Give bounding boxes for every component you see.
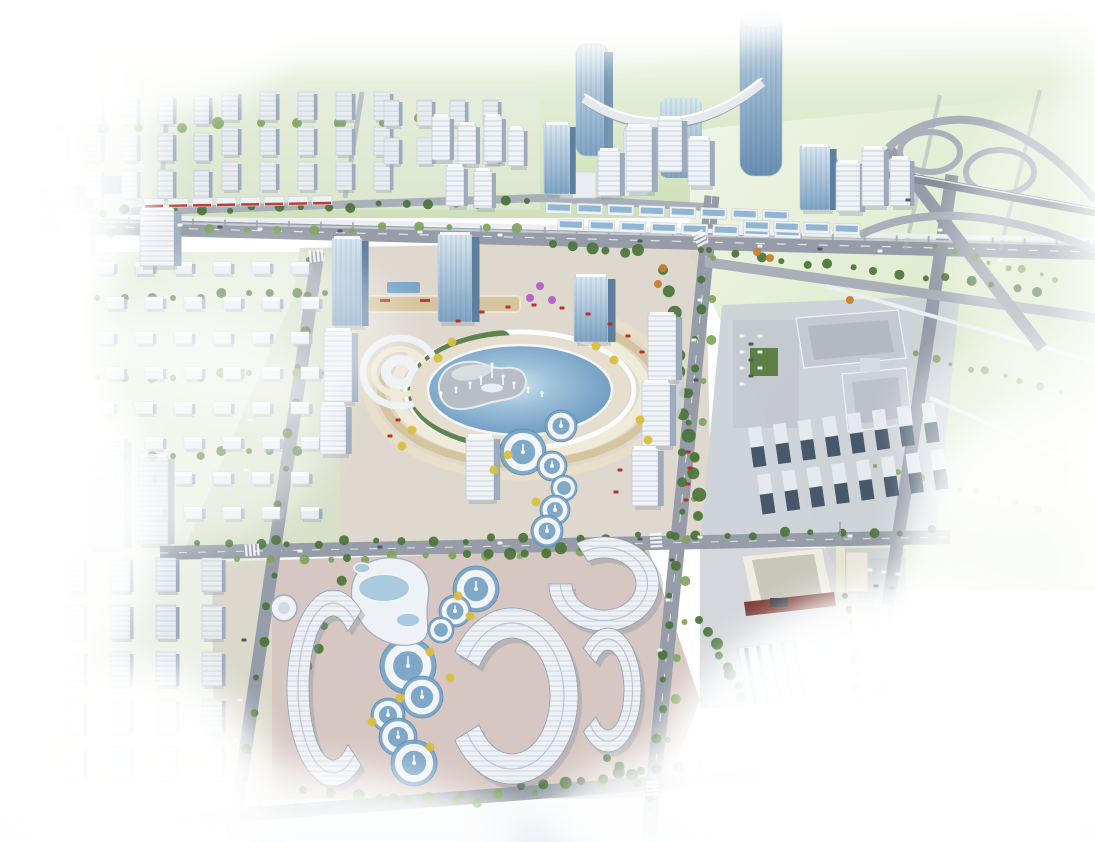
- tree: [690, 452, 700, 462]
- round-tower-core: [278, 602, 290, 614]
- tower-shadow: [449, 206, 467, 210]
- tree: [660, 677, 666, 683]
- white-vehicle: [848, 535, 853, 538]
- red-vehicle: [686, 451, 691, 454]
- fountain-jet-top: [479, 375, 482, 378]
- block-floors: [384, 138, 399, 164]
- block-shadow: [158, 592, 178, 595]
- yellow-tree: [396, 694, 405, 703]
- yellow-tree: [466, 612, 475, 621]
- tree: [749, 532, 757, 540]
- tree: [933, 355, 941, 363]
- tower-roof: [690, 136, 708, 139]
- apartment-slab: [260, 127, 280, 158]
- workshop-roof: [822, 416, 838, 438]
- block-side: [222, 654, 226, 686]
- ring-fountain: [386, 713, 390, 717]
- shed-roof-panel: [560, 221, 582, 228]
- dark-vehicle: [749, 359, 754, 362]
- tower-roof: [628, 124, 650, 127]
- tree: [697, 276, 705, 284]
- orange-tree: [654, 280, 662, 288]
- block-shadow: [300, 120, 316, 123]
- red-vehicle: [586, 313, 591, 316]
- block-side: [173, 135, 177, 161]
- tree: [568, 241, 578, 251]
- ring-fountain: [420, 695, 424, 699]
- red-vehicle: [640, 351, 645, 354]
- tower: [800, 144, 837, 214]
- tree: [632, 244, 644, 256]
- shed-roof-panel: [765, 212, 787, 219]
- yellow-tree: [408, 426, 417, 435]
- tree: [682, 536, 690, 544]
- white-vehicle: [418, 231, 423, 234]
- red-vehicle: [532, 304, 537, 307]
- block-floors: [194, 133, 209, 161]
- orange-tree: [753, 248, 761, 256]
- dark-vehicle: [749, 343, 754, 346]
- white-vehicle: [878, 250, 883, 253]
- fountain-jet-top: [454, 386, 457, 389]
- tower-roof: [334, 236, 360, 239]
- workshop-roof: [807, 466, 823, 488]
- tree: [423, 552, 429, 558]
- tower-texture: [484, 116, 502, 162]
- tower: [574, 274, 615, 346]
- tree: [666, 531, 674, 539]
- tree: [703, 627, 713, 637]
- block-shadow: [262, 155, 278, 158]
- apartment-slab: [336, 92, 356, 123]
- apartment-slab: [222, 162, 242, 193]
- white-vehicle: [758, 245, 763, 248]
- block-side: [222, 560, 226, 592]
- tower: [544, 122, 576, 198]
- block-side: [176, 560, 180, 592]
- tower-side: [524, 131, 528, 166]
- red-vehicle: [560, 307, 565, 310]
- tree: [710, 255, 716, 261]
- ring-fountain: [474, 587, 478, 591]
- orange-tree: [659, 264, 667, 272]
- tree: [913, 350, 919, 356]
- tree: [778, 258, 784, 264]
- apartment-slab: [194, 133, 213, 164]
- white-vehicle: [258, 228, 263, 231]
- block-floors: [156, 605, 176, 639]
- apartment-slab: [336, 127, 356, 158]
- workshop-face: [785, 490, 801, 512]
- tower-roof: [476, 168, 490, 171]
- city-rendering-canvas: [0, 0, 1095, 842]
- tree: [671, 561, 681, 571]
- tree: [260, 637, 270, 647]
- tower-roof: [864, 146, 882, 149]
- shed-roof-panel: [836, 225, 858, 232]
- dark-vehicle: [378, 546, 383, 549]
- block-shadow: [204, 639, 224, 642]
- tower: [458, 122, 480, 168]
- dark-vehicle: [638, 240, 643, 243]
- roof-pool-tiny: [354, 563, 370, 573]
- red-vehicle: [396, 419, 401, 422]
- tree: [504, 548, 516, 560]
- tower-texture: [626, 126, 652, 192]
- workshop-roof: [748, 426, 764, 448]
- yellow-tree: [434, 354, 443, 363]
- tree: [204, 224, 214, 234]
- tree: [692, 488, 706, 502]
- tree: [822, 259, 832, 269]
- workshop-face: [809, 486, 825, 508]
- workshop-roof: [856, 459, 872, 481]
- shed-roof-panel: [610, 206, 632, 213]
- tower-texture: [474, 170, 492, 208]
- tree: [227, 208, 233, 214]
- tree: [711, 638, 723, 650]
- tree: [518, 533, 528, 543]
- block-floors: [202, 605, 222, 639]
- ring-pool: [545, 410, 577, 442]
- block-floors: [222, 162, 238, 190]
- tree: [429, 537, 439, 547]
- magenta-tree: [536, 282, 544, 290]
- tree: [349, 228, 355, 234]
- yellow-tree: [368, 718, 377, 727]
- ring-fountain: [453, 609, 457, 613]
- tower-shadow: [865, 206, 887, 210]
- shed-awning: [265, 203, 283, 206]
- tree: [512, 223, 522, 233]
- yellow-tree: [532, 498, 541, 507]
- block-floors: [260, 127, 276, 155]
- white-vehicle: [298, 550, 303, 553]
- tower-roof: [650, 312, 674, 315]
- magenta-tree: [548, 296, 556, 304]
- tree: [941, 273, 949, 281]
- tree: [923, 275, 929, 281]
- tree: [378, 222, 386, 230]
- tower-shadow: [441, 322, 475, 326]
- shed-roof-panel: [776, 223, 798, 230]
- white-vehicle: [498, 542, 503, 545]
- dark-vehicle: [338, 230, 343, 233]
- block-floors: [158, 170, 173, 198]
- dark-vehicle: [242, 639, 247, 642]
- tower-roof: [468, 434, 492, 437]
- tree: [244, 227, 250, 233]
- tower-roof: [434, 114, 448, 117]
- tree: [635, 532, 641, 538]
- block-shadow: [303, 519, 321, 522]
- tower-side: [476, 127, 480, 164]
- tower-roof: [644, 380, 668, 383]
- red-vehicle: [626, 335, 631, 338]
- yellow-tree: [426, 743, 435, 752]
- orange-tree: [846, 296, 854, 304]
- tower-roof: [448, 164, 462, 167]
- tower-shadow: [601, 196, 623, 200]
- block-floors: [158, 133, 173, 161]
- tree: [807, 529, 813, 535]
- theater-entrance: [770, 598, 788, 607]
- tower: [598, 148, 625, 200]
- block-shadow: [224, 155, 240, 158]
- red-vehicle: [684, 499, 689, 502]
- tower-side: [608, 279, 615, 342]
- white-vehicle: [238, 699, 243, 702]
- yellow-tree: [454, 592, 463, 601]
- tree: [731, 250, 739, 258]
- block-shadow: [262, 120, 278, 123]
- ring-fountain: [550, 464, 554, 468]
- tree: [677, 477, 687, 487]
- shed-roof-panel: [622, 223, 644, 230]
- shed-roof-panel: [579, 205, 601, 212]
- tree: [463, 550, 471, 558]
- block-shadow: [224, 120, 240, 123]
- apartment-slab: [260, 92, 280, 123]
- tree: [337, 576, 347, 586]
- tower-texture: [508, 128, 524, 166]
- block-floors: [336, 92, 352, 120]
- white-vehicle: [758, 351, 763, 354]
- tower-roof: [660, 116, 680, 119]
- tree: [804, 261, 812, 269]
- apartment-slab: [158, 170, 177, 201]
- yellow-tree: [504, 451, 513, 460]
- tree: [524, 198, 530, 204]
- tree: [663, 285, 675, 297]
- ring-fountain: [412, 761, 416, 765]
- tree: [446, 224, 452, 230]
- tower-shadow: [839, 212, 863, 216]
- block-floors: [222, 127, 238, 155]
- tree: [780, 527, 790, 537]
- white-vehicle: [740, 367, 745, 370]
- workshop-face: [760, 493, 776, 515]
- tree: [682, 619, 688, 625]
- red-vehicle: [480, 311, 485, 314]
- tree: [251, 709, 259, 717]
- aerial-city-rendering: [0, 0, 1095, 842]
- apartment-slab: [298, 162, 318, 193]
- apartment-slab: [222, 127, 242, 158]
- tree: [691, 365, 699, 373]
- tower-roof: [576, 274, 606, 277]
- tower: [648, 312, 682, 384]
- tree: [666, 593, 672, 599]
- white-vehicle: [658, 649, 663, 652]
- apartment-slab: [156, 605, 180, 642]
- tower-side: [658, 451, 664, 506]
- block-side: [314, 164, 318, 190]
- block-floors: [298, 127, 314, 155]
- shed-awning: [169, 204, 187, 207]
- block-shadow: [300, 190, 316, 193]
- apartment-slab: [336, 162, 356, 193]
- white-vehicle: [666, 599, 671, 602]
- yellow-tree: [490, 466, 499, 475]
- tree: [484, 549, 494, 559]
- white-vehicle: [882, 571, 887, 574]
- tower-side: [830, 149, 837, 210]
- red-vehicle: [614, 491, 619, 494]
- block-side: [352, 94, 356, 120]
- block-shadow: [386, 126, 401, 129]
- tree: [501, 196, 511, 206]
- block-side: [276, 164, 280, 190]
- white-vehicle: [868, 569, 873, 572]
- tower-texture: [648, 314, 676, 380]
- tower: [836, 160, 865, 216]
- workshop-roof: [872, 409, 888, 431]
- tower-texture: [574, 276, 608, 342]
- block-floors: [417, 100, 432, 126]
- workshop-roof: [782, 470, 798, 492]
- white-vehicle: [758, 335, 763, 338]
- fountain-jet-top: [439, 391, 442, 394]
- yellow-tree: [426, 648, 435, 657]
- tower-roof: [802, 144, 828, 147]
- block-side: [209, 135, 213, 161]
- block-floors: [417, 138, 432, 164]
- ring-fountain: [545, 529, 549, 533]
- apartment-slab: [384, 100, 403, 129]
- tree: [894, 270, 904, 280]
- block-floors: [202, 652, 222, 686]
- tower-side: [450, 119, 454, 160]
- red-vehicle: [686, 483, 691, 486]
- block-side: [352, 164, 356, 190]
- workshop-roof: [773, 423, 789, 445]
- tower-texture: [466, 436, 494, 500]
- deck-pool: [387, 282, 420, 293]
- ring-fountain: [559, 424, 563, 428]
- block-side: [222, 607, 226, 639]
- white-vehicle: [698, 536, 703, 539]
- block-side: [399, 102, 403, 126]
- white-vehicle: [698, 299, 703, 302]
- tree: [403, 200, 411, 208]
- block-shadow: [262, 190, 278, 193]
- shed-roof-panel: [806, 224, 828, 231]
- tree: [423, 199, 433, 209]
- tree: [869, 267, 877, 275]
- tree: [267, 555, 275, 563]
- tower-shadow: [435, 160, 453, 164]
- block-side: [276, 129, 280, 155]
- tower-side: [910, 161, 914, 206]
- tree: [870, 528, 880, 538]
- tower-roof: [486, 114, 500, 117]
- tower-side: [492, 173, 496, 208]
- tower-side: [464, 169, 468, 206]
- red-vehicle: [688, 467, 693, 470]
- tower: [688, 136, 715, 190]
- fountain-jet-top: [540, 391, 543, 394]
- white-vehicle: [498, 234, 503, 237]
- tower-roof: [838, 160, 858, 163]
- yellow-tree: [448, 338, 457, 347]
- workshop-roof: [798, 419, 814, 441]
- tower-texture: [862, 148, 884, 206]
- block-shadow: [196, 124, 211, 127]
- white-vehicle: [938, 229, 943, 232]
- tower-roof: [546, 122, 568, 125]
- dark-vehicle: [670, 559, 675, 562]
- block-shadow: [376, 190, 392, 193]
- tree: [873, 464, 877, 468]
- tree: [682, 429, 696, 443]
- shed-roof-panel: [734, 211, 756, 218]
- block-shadow: [338, 155, 354, 158]
- tower-shadow: [547, 194, 573, 198]
- shed-roof-panel: [672, 208, 694, 215]
- tower-texture: [458, 124, 476, 164]
- magenta-tree: [526, 294, 534, 302]
- block-floors: [336, 162, 352, 190]
- tower-side: [652, 129, 658, 192]
- tree: [309, 225, 319, 235]
- tree: [483, 224, 491, 232]
- block-shadow: [160, 124, 175, 127]
- tree: [339, 535, 349, 545]
- dark-vehicle: [218, 226, 223, 229]
- tower: [508, 126, 528, 170]
- fountain-jet-top: [512, 381, 515, 384]
- tree: [345, 203, 355, 213]
- apartment-slab: [156, 558, 180, 595]
- block-side: [314, 129, 318, 155]
- tree: [448, 552, 456, 560]
- tower-shadow: [323, 454, 349, 458]
- block-shadow: [300, 155, 316, 158]
- antenna-tower: [836, 546, 845, 592]
- ring-fountain: [396, 735, 400, 739]
- mall-sign-2: [420, 299, 430, 302]
- block-floors: [260, 162, 276, 190]
- tower-roof: [600, 148, 618, 151]
- tower-texture: [446, 166, 464, 206]
- workshop-face: [800, 439, 816, 461]
- apartment-slab: [202, 605, 226, 642]
- tree: [463, 539, 469, 545]
- block-shadow: [196, 161, 211, 164]
- tree: [706, 247, 712, 253]
- red-vehicle: [618, 469, 623, 472]
- campus-tree-court: [750, 348, 778, 376]
- tree: [177, 123, 187, 133]
- ring-pool: [428, 617, 454, 643]
- tree: [376, 200, 382, 206]
- dark-vehicle: [694, 379, 699, 382]
- tree: [678, 448, 686, 456]
- tower-side: [502, 119, 506, 162]
- block-shadow: [224, 190, 240, 193]
- fog-patch: [100, 245, 400, 415]
- workshop-face: [776, 443, 792, 465]
- tree: [695, 616, 703, 624]
- shed-roof-panel: [591, 222, 613, 229]
- workshop-roof: [881, 456, 897, 478]
- tree: [343, 554, 351, 562]
- tree: [273, 226, 281, 234]
- block-shadow: [160, 161, 175, 164]
- tower-side: [710, 141, 715, 186]
- block-side: [238, 164, 242, 190]
